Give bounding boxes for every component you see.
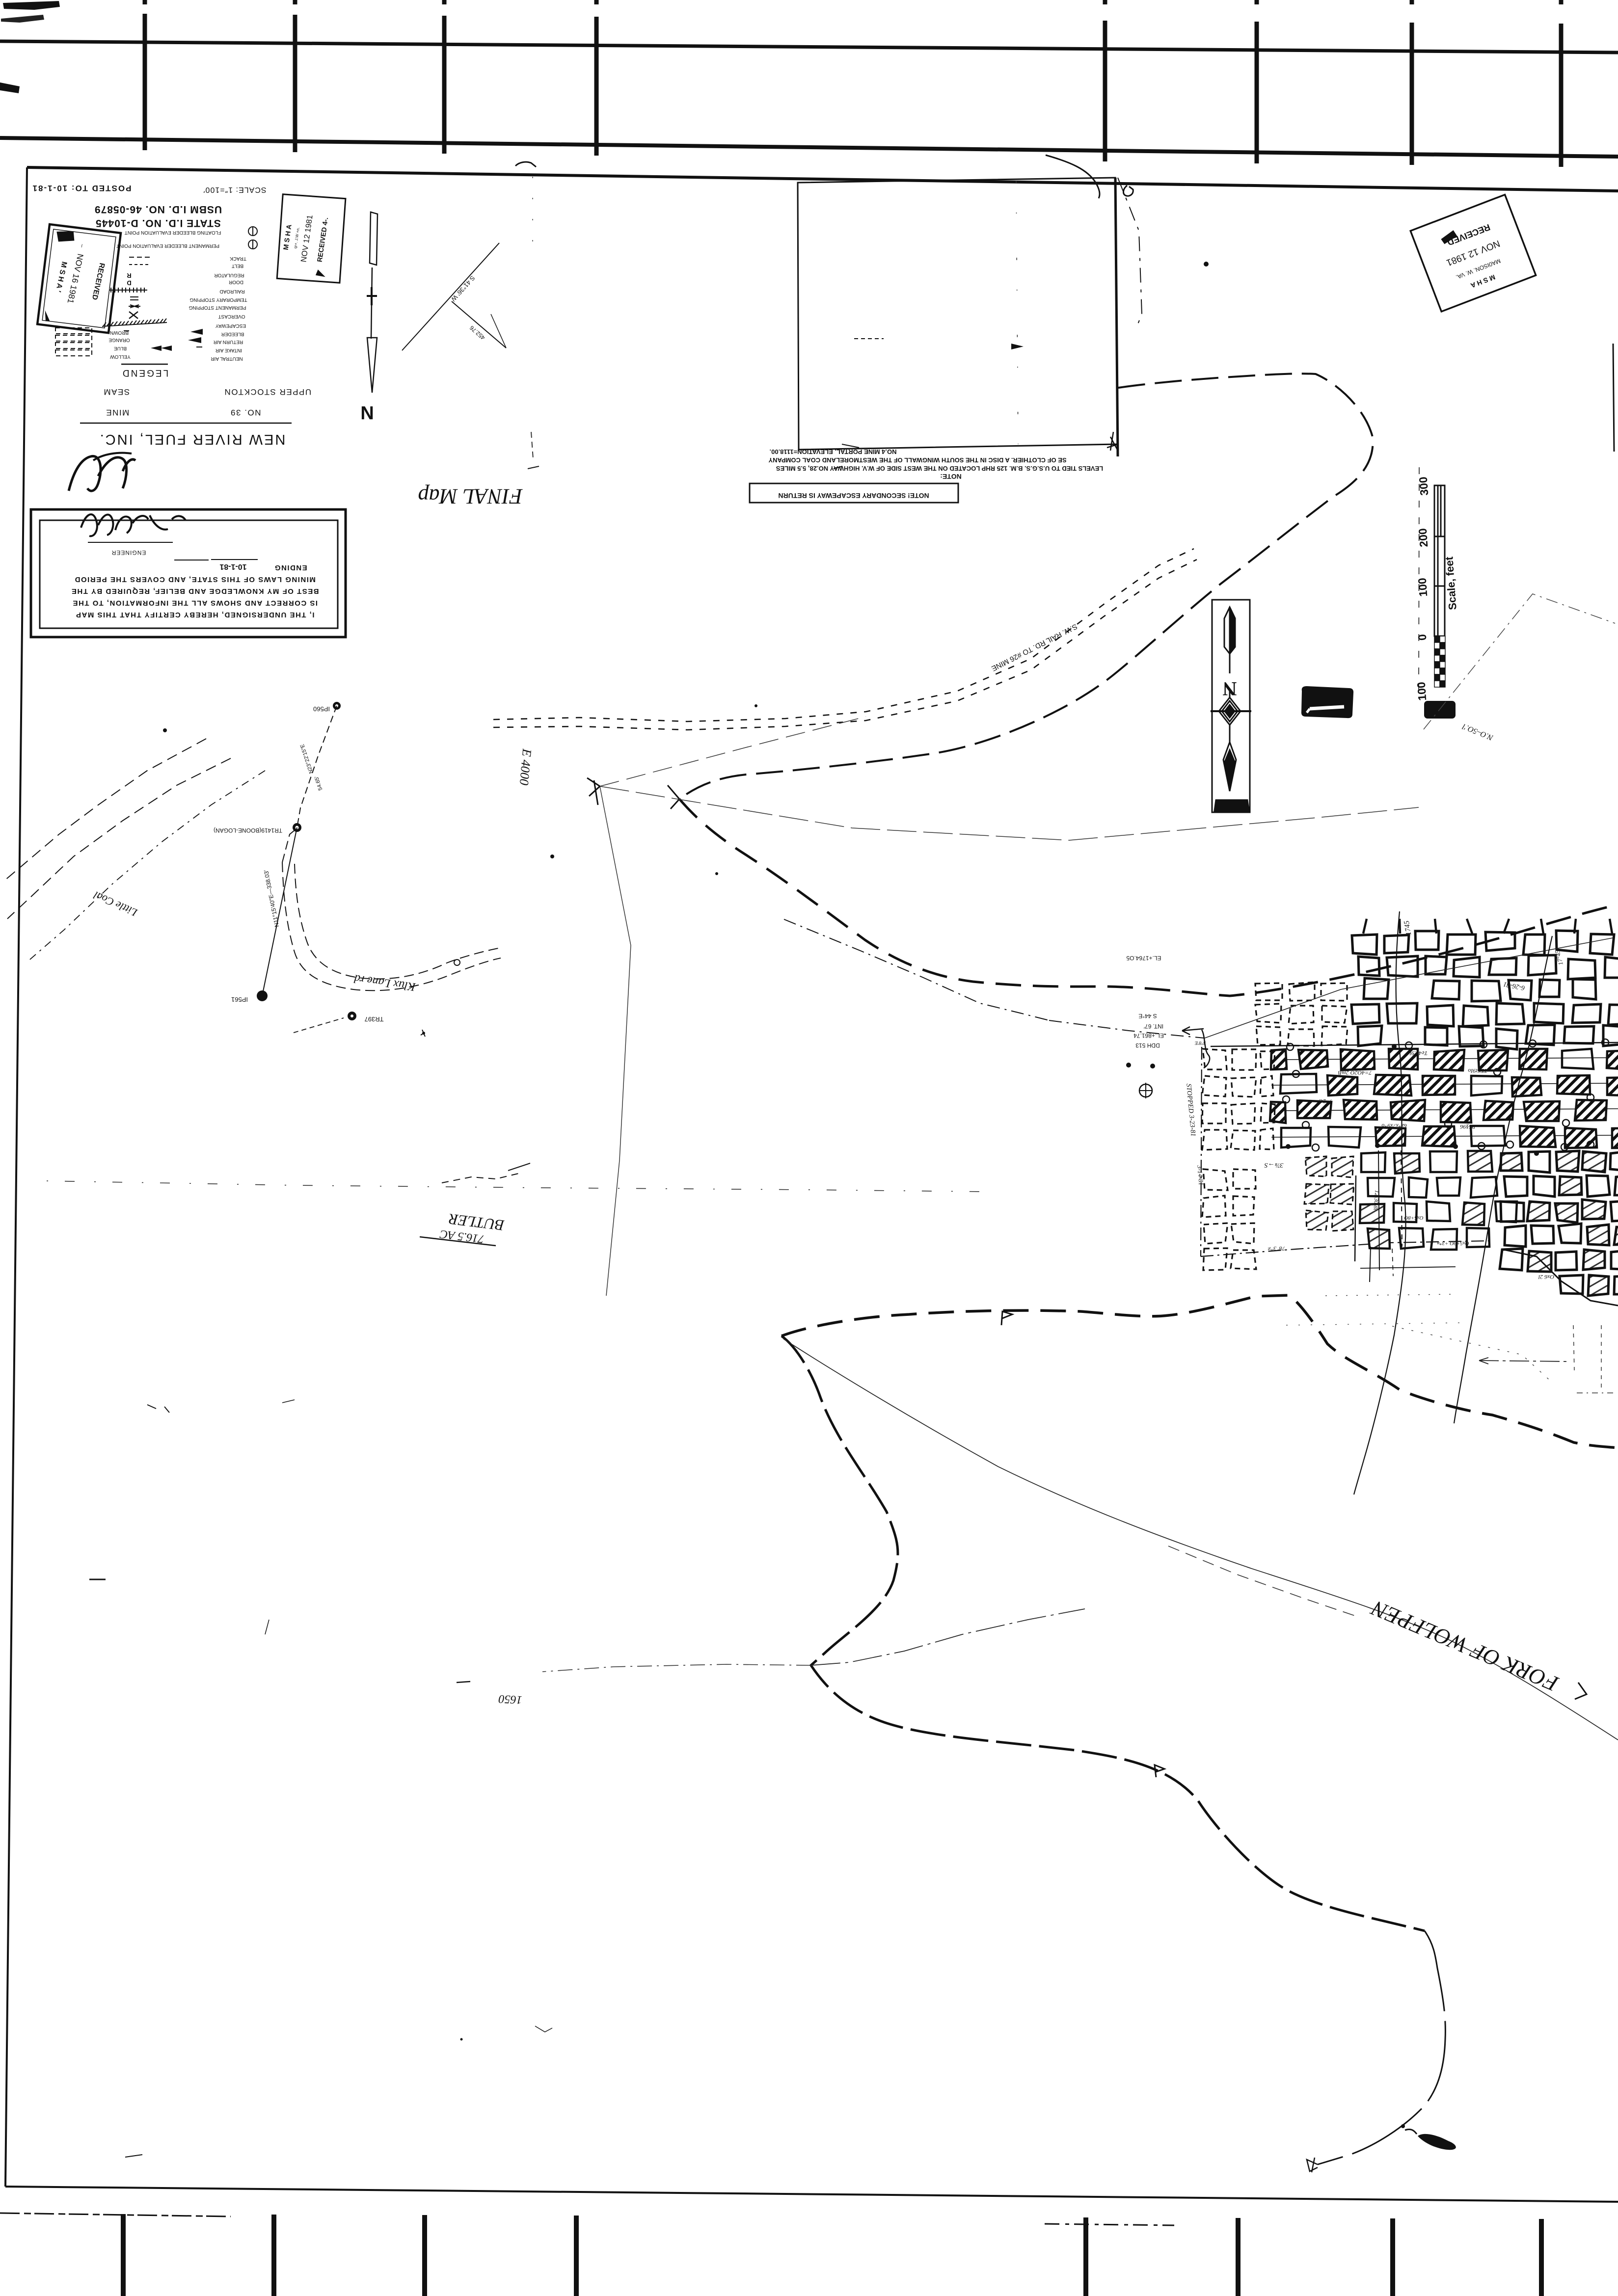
svg-text:SCALE: 1″=100′: SCALE: 1″=100′ [203, 186, 267, 194]
svg-text:REGULATOR: REGULATOR [214, 272, 244, 278]
svg-text:100: 100 [1416, 578, 1430, 597]
svg-text:TEMPORARY STOPPING: TEMPORARY STOPPING [189, 297, 247, 302]
svg-text:EL.+861.74: EL.+861.74 [1133, 1032, 1164, 1039]
svg-text:NOTE! SECONDARY ESCAPEWAY I: NOTE! SECONDARY ESCAPEWAY IS RETURN [778, 492, 929, 500]
svg-text:TR397: TR397 [364, 1015, 383, 1023]
svg-text:PERMANENT BLEEDER EVALUATION: PERMANENT BLEEDER EVALUATION POINT [116, 243, 219, 248]
svg-text:BEST OF MY KNOWLEDGE AND BELIE: BEST OF MY KNOWLEDGE AND BELIEF, REQUIRE… [71, 587, 319, 595]
svg-text:R5§96: R5§96 [1460, 1123, 1476, 1130]
svg-text:MINING LAWS OF THIS STATE, AN: MINING LAWS OF THIS STATE, AND COVERS TH… [74, 575, 316, 584]
svg-text:OVERCAST: OVERCAST [218, 314, 245, 319]
svg-text:TR1419(BOONE-LOGAN): TR1419(BOONE-LOGAN) [214, 827, 282, 834]
svg-text:Oх6 2l: Oх6 2l [1538, 1274, 1554, 1281]
svg-text:USBM I.D. NO. 46-05879: USBM I.D. NO. 46-05879 [94, 204, 222, 215]
svg-text:NEUTRAL AIR: NEUTRAL AIR [211, 356, 243, 361]
svg-text:TESt9Io: TESt9Io [1468, 1068, 1487, 1074]
svg-text:NO. 39: NO. 39 [230, 408, 261, 417]
svg-text:10-1-81: 10-1-81 [219, 562, 246, 571]
svg-text:1650: 1650 [498, 1692, 522, 1706]
svg-text:6z*х7х9*o: 6z*х7х9*o [1381, 1122, 1406, 1129]
svg-text:ORANGE: ORANGE [108, 337, 130, 343]
svg-text:DDH 513: DDH 513 [1135, 1042, 1160, 1049]
svg-text:3⅞→S: 3⅞→S [1265, 1161, 1284, 1169]
svg-text:DOOR: DOOR [229, 279, 243, 285]
svg-text:S 44°E: S 44°E [1138, 1013, 1157, 1019]
svg-text:78′ 3″≠: 78′ 3″≠ [1267, 1245, 1285, 1252]
svg-text:SEAM: SEAM [103, 387, 130, 397]
svg-text:300: 300 [1417, 477, 1431, 496]
svg-text:Oх5+8О: Oх5+8О [1404, 1215, 1423, 1221]
svg-text:LEGEND: LEGEND [121, 368, 168, 378]
svg-text:N: N [360, 402, 374, 423]
svg-text:EL.+1764.O5: EL.+1764.O5 [1126, 955, 1161, 961]
svg-text:I, THE UNDERSIGNED, HEREBY CER: I, THE UNDERSIGNED, HEREBY CERTIFY THAT … [75, 611, 314, 619]
svg-text:7~2C: 7~2C [1319, 1098, 1332, 1105]
svg-text:YELLOW: YELLOW [110, 354, 131, 359]
svg-text:IP560: IP560 [313, 705, 330, 713]
svg-text:IP561: IP561 [231, 996, 248, 1003]
svg-text:POSTED TO: 10-1-81: POSTED TO: 10-1-81 [32, 184, 132, 193]
svg-text:INT. 67′: INT. 67′ [1143, 1023, 1163, 1030]
svg-text:PERMANENT STOPPING: PERMANENT STOPPING [189, 305, 246, 310]
svg-text:BLUE: BLUE [114, 346, 127, 351]
svg-text:NEW RIVER FUEL, INC.: NEW RIVER FUEL, INC. [99, 431, 286, 447]
svg-text:ESCAPEWAY: ESCAPEWAY [216, 323, 246, 328]
svg-text:BLEEDER: BLEEDER [221, 331, 244, 337]
svg-text:RETURN AIR: RETURN AIR [214, 339, 243, 345]
svg-text:FINAL Map: FINAL Map [418, 484, 523, 508]
svg-text:MINE: MINE [106, 408, 130, 417]
svg-text:NOTE:: NOTE: [940, 473, 962, 481]
svg-text:7=4O2O 2mB: 7=4O2O 2mB [1338, 1069, 1372, 1076]
svg-text:ENGINEER: ENGINEER [111, 549, 146, 556]
svg-text:RAILROAD: RAILROAD [219, 289, 244, 294]
svg-text:UPPER STOCKTON: UPPER STOCKTON [224, 387, 311, 397]
svg-text:Oх5+9O +3*в: Oх5+9O +3*в [1437, 1240, 1469, 1246]
svg-text:100: 100 [1415, 682, 1429, 701]
svg-text:FLOATING BLEEDER EVALUATION: FLOATING BLEEDER EVALUATION POINT [125, 230, 221, 235]
svg-text:ENDING: ENDING [274, 563, 307, 572]
svg-text:BELT: BELT [232, 263, 243, 268]
svg-text:LEVELS TIED TO U.S.G.S. B.M.: LEVELS TIED TO U.S.G.S. B.M. 125 RHP LOC… [776, 465, 1104, 472]
svg-text:R: R [127, 272, 132, 279]
svg-text:TRACK: TRACK [230, 256, 246, 261]
svg-text:N: N [1222, 678, 1237, 700]
svg-text:NO.4 MINE PORTAL, ELEVATION=1: NO.4 MINE PORTAL, ELEVATION=1118.00. [770, 448, 897, 455]
svg-text:STATE I.D. NO. D-10445: STATE I.D. NO. D-10445 [95, 217, 221, 229]
svg-text:IS CORRECT AND SHOWS ALL THE I: IS CORRECT AND SHOWS ALL THE INFORMATION… [72, 599, 318, 607]
svg-text:3°8′E: 3°8′E [1195, 1040, 1206, 1045]
svg-text:SE OF CLOTHIER. A DISC IN: SE OF CLOTHIER. A DISC IN THE SOUTH WING… [768, 456, 1066, 464]
svg-text:200: 200 [1416, 528, 1430, 548]
svg-text:Tе49.9l: Tе49.9l [1409, 1050, 1428, 1057]
svg-text:0: 0 [1416, 634, 1429, 641]
svg-text:INTAKE AIR: INTAKE AIR [216, 347, 242, 353]
svg-text:D: D [127, 279, 131, 287]
